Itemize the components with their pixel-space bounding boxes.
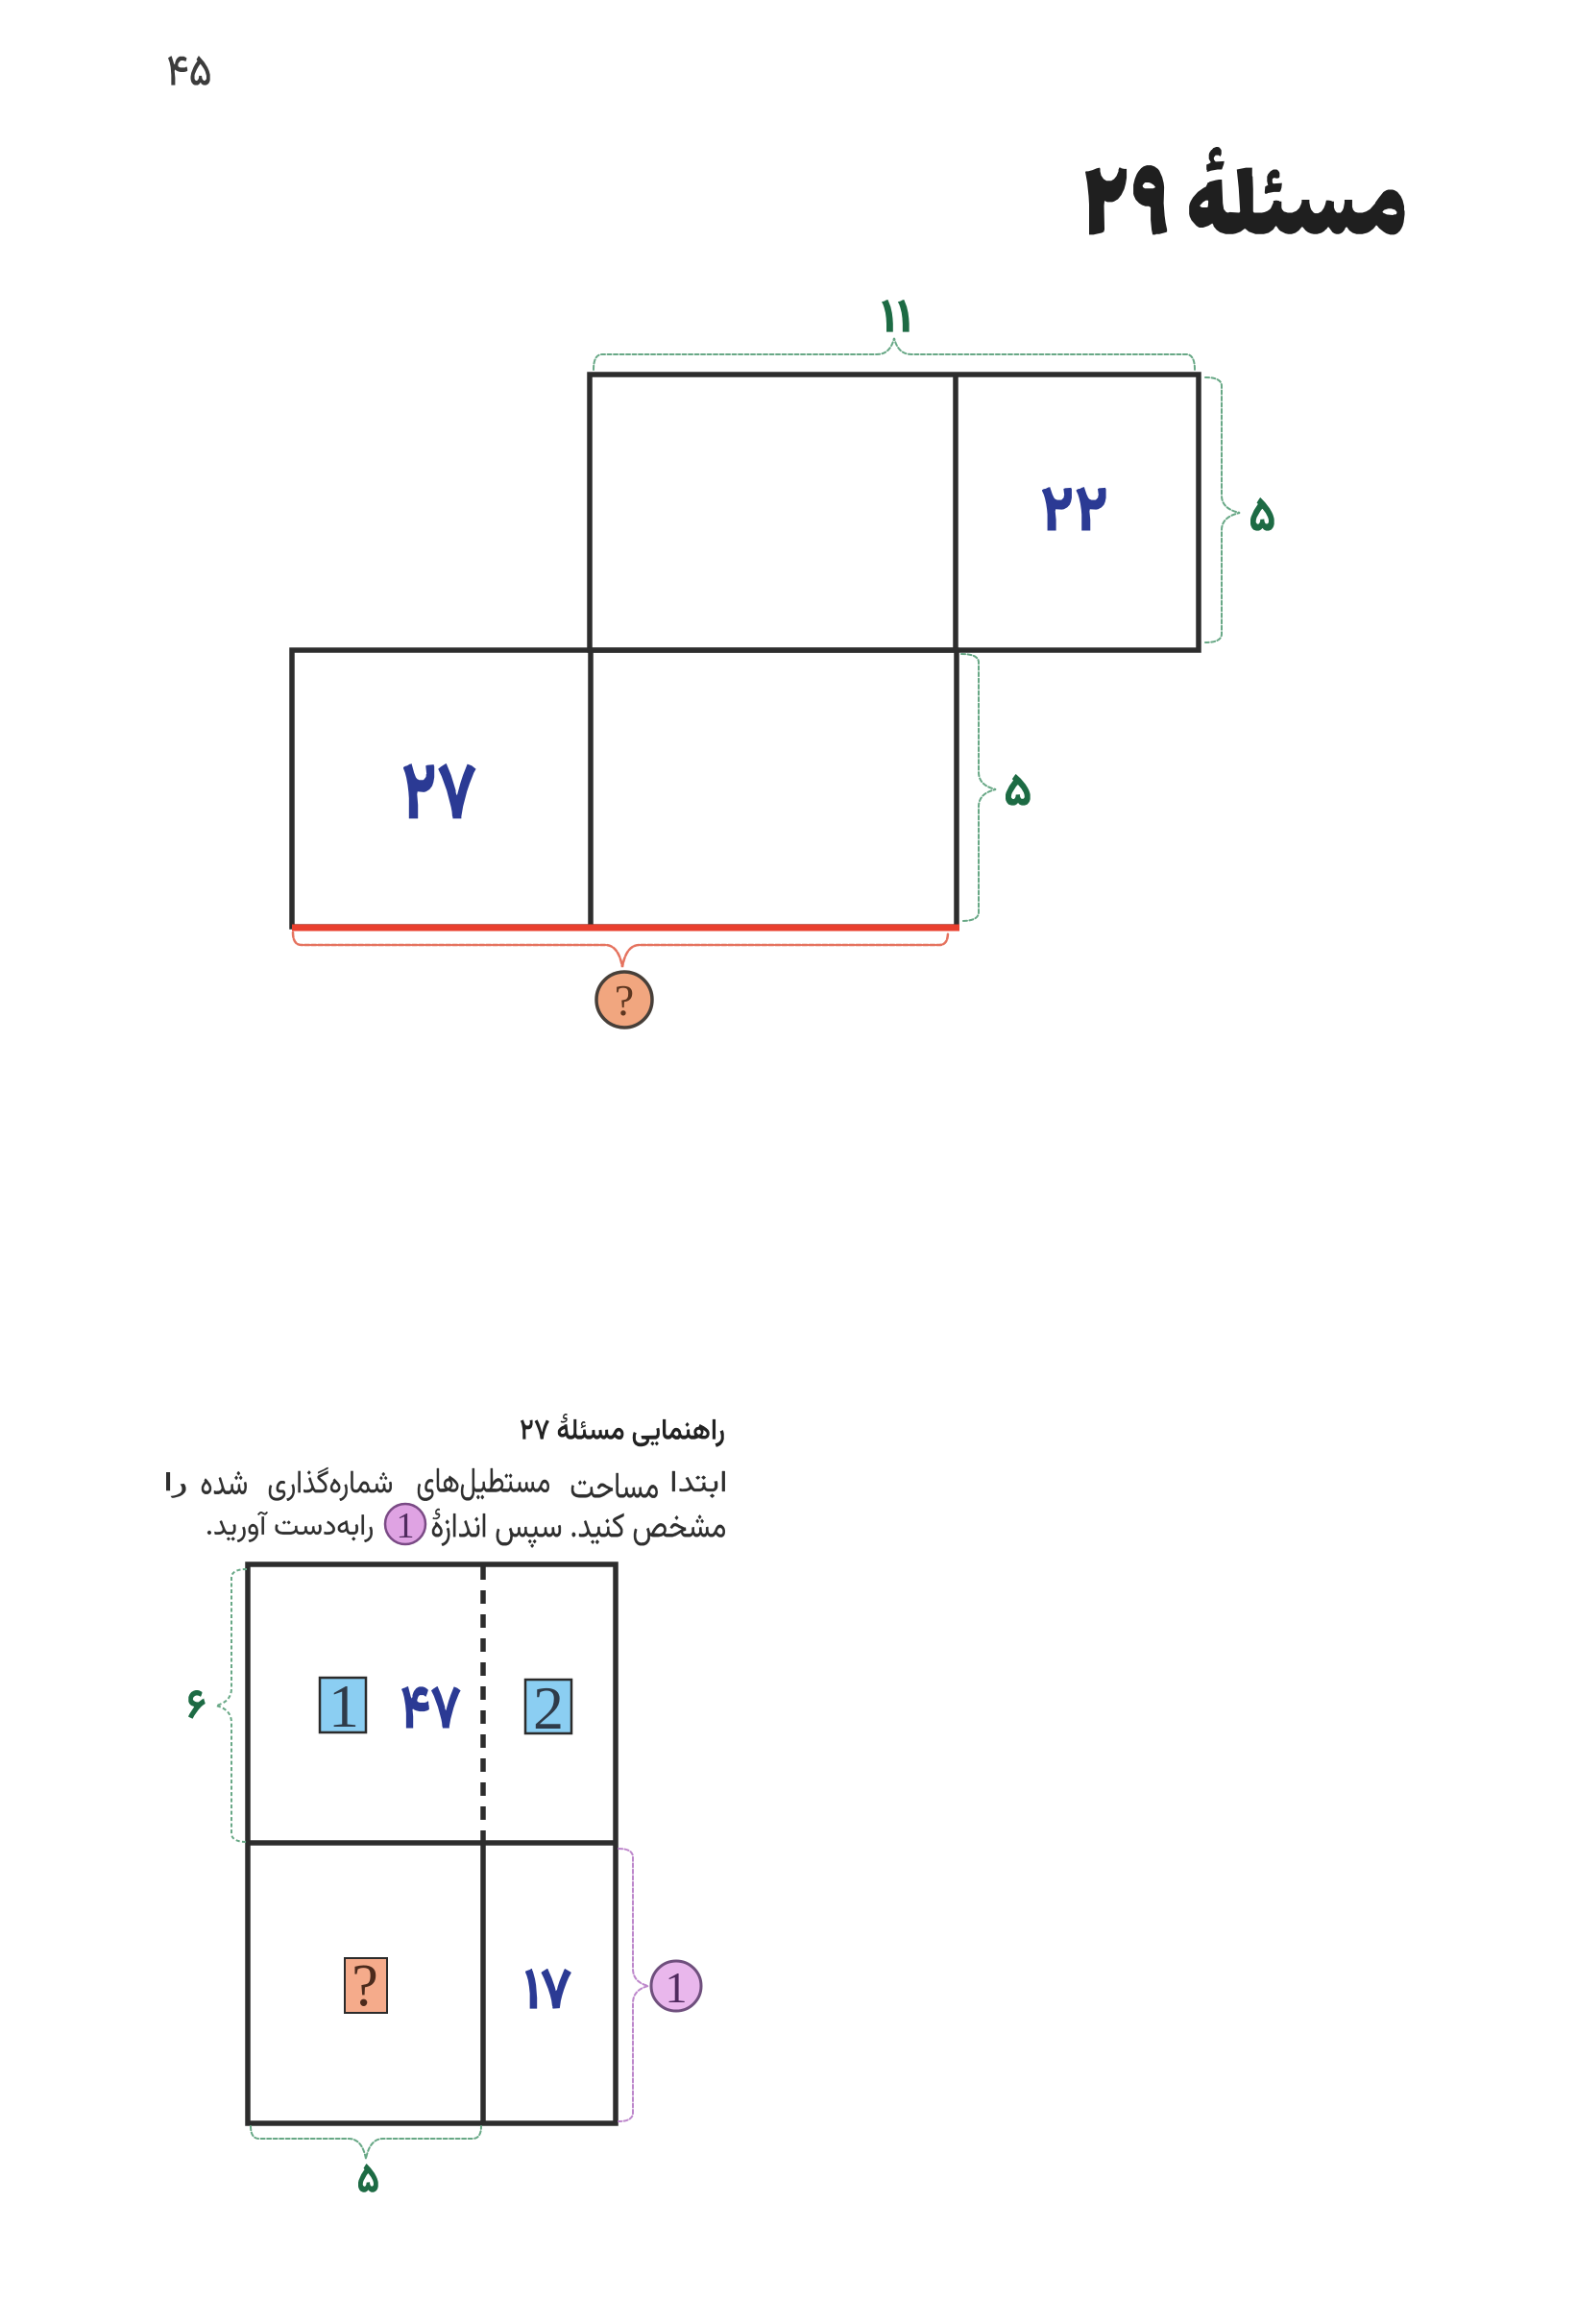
svg-text:?: ? bbox=[352, 1953, 378, 2019]
svg-text:?: ? bbox=[615, 976, 634, 1025]
svg-text:1: 1 bbox=[328, 1672, 359, 1740]
svg-text:1: 1 bbox=[397, 1506, 415, 1546]
svg-text:2: 2 bbox=[533, 1674, 564, 1742]
svg-text:1: 1 bbox=[666, 1963, 688, 2012]
